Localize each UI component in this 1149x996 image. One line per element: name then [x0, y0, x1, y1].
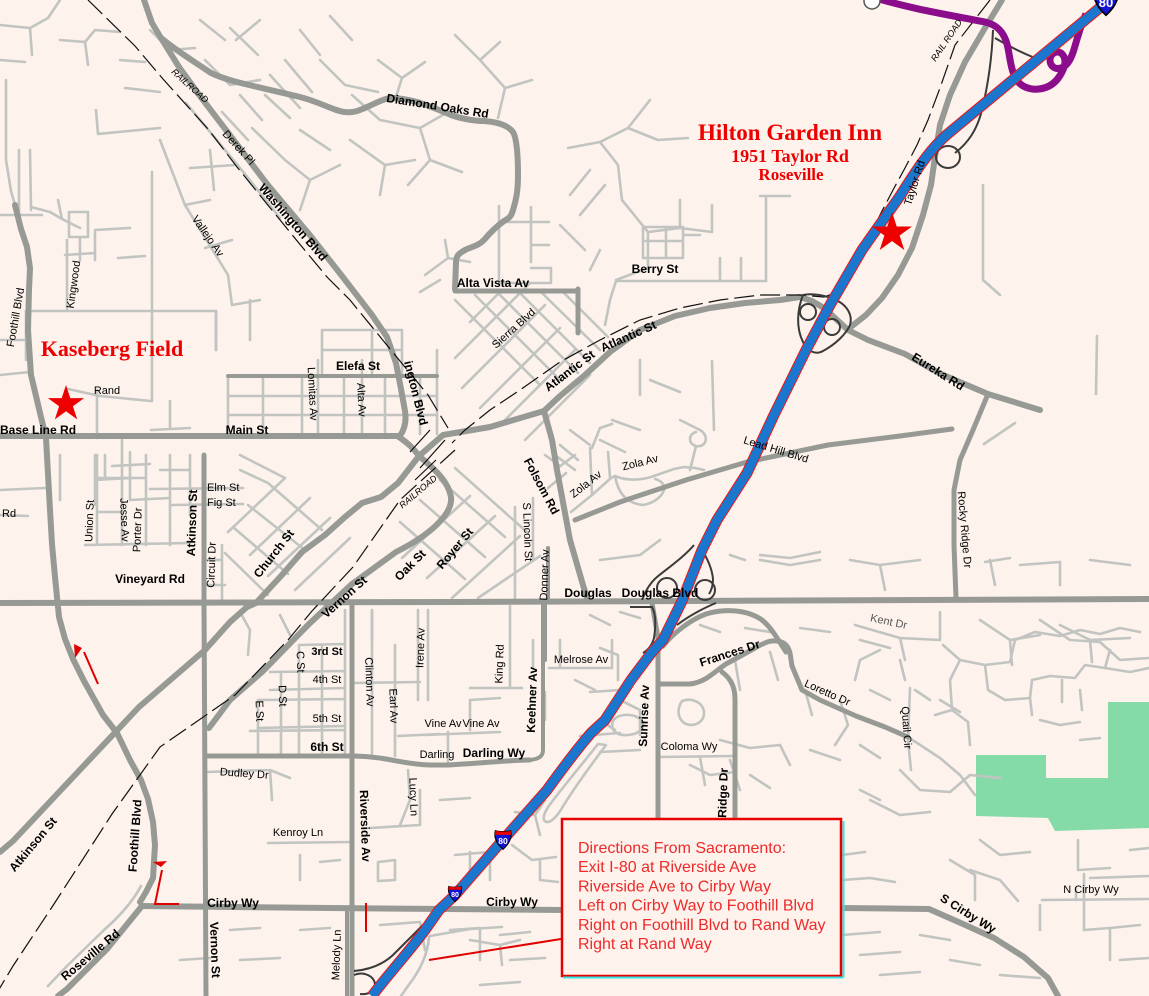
svg-text:Rd: Rd	[2, 508, 16, 520]
svg-text:Melody Ln: Melody Ln	[330, 929, 344, 980]
svg-text:Vernon St: Vernon St	[207, 922, 223, 978]
svg-text:Keehner Av: Keehner Av	[524, 666, 540, 733]
svg-text:Fig St: Fig St	[207, 497, 236, 509]
svg-text:Donner Av: Donner Av	[538, 549, 552, 601]
svg-text:80: 80	[498, 836, 508, 846]
svg-text:D St: D St	[276, 685, 289, 707]
svg-text:Union St: Union St	[83, 500, 96, 543]
svg-text:C St: C St	[294, 651, 307, 673]
svg-text:Roseville: Roseville	[758, 165, 824, 184]
svg-text:Rand: Rand	[94, 385, 120, 397]
svg-text:Kenroy Ln: Kenroy Ln	[273, 827, 323, 839]
svg-text:Darling Wy: Darling Wy	[463, 746, 526, 760]
svg-text:King Rd: King Rd	[493, 644, 506, 684]
svg-text:1951 Taylor Rd: 1951 Taylor Rd	[731, 146, 849, 166]
svg-text:3rd St: 3rd St	[311, 646, 343, 658]
svg-text:Base Line Rd: Base Line Rd	[0, 423, 76, 437]
svg-text:Right at Rand Way: Right at Rand Way	[578, 936, 712, 953]
svg-text:Hilton Garden Inn: Hilton Garden Inn	[698, 120, 882, 145]
svg-text:Clinton Av: Clinton Av	[362, 657, 376, 707]
svg-text:Douglas Blvd: Douglas Blvd	[622, 586, 699, 600]
svg-text:Left on Cirby Way to Foothill: Left on Cirby Way to Foothill Blvd	[578, 898, 814, 915]
svg-text:80: 80	[1099, 0, 1113, 10]
svg-text:Kaseberg Field: Kaseberg Field	[41, 336, 183, 361]
svg-text:Atkinson St: Atkinson St	[184, 489, 200, 556]
svg-text:4th St: 4th St	[313, 674, 342, 686]
svg-text:Riverside Ave to Cirby Way: Riverside Ave to Cirby Way	[578, 878, 771, 895]
svg-text:Alta Av: Alta Av	[354, 383, 368, 418]
svg-text:Exit I-80 at Riverside Ave: Exit I-80 at Riverside Ave	[578, 859, 757, 876]
svg-text:Melrose Av: Melrose Av	[554, 654, 609, 666]
svg-text:Berry St: Berry St	[632, 262, 679, 276]
svg-text:Coloma Wy: Coloma Wy	[661, 741, 718, 753]
svg-text:N Cirby Wy: N Cirby Wy	[1063, 884, 1119, 896]
svg-text:Cirby Wy: Cirby Wy	[207, 896, 259, 910]
svg-text:Circuit Dr: Circuit Dr	[205, 541, 219, 588]
svg-text:Vine Av: Vine Av	[463, 718, 500, 730]
svg-text:Alta Vista Av: Alta Vista Av	[457, 276, 530, 290]
svg-text:Jesse Av: Jesse Av	[117, 498, 131, 543]
svg-text:Cirby Wy: Cirby Wy	[486, 895, 538, 909]
svg-text:Douglas: Douglas	[564, 586, 612, 600]
svg-text:Main St: Main St	[226, 423, 269, 437]
svg-text:Irene Av: Irene Av	[414, 627, 427, 668]
svg-text:Lucy Ln: Lucy Ln	[406, 777, 419, 816]
svg-text:Right on Foothill Blvd to Rand: Right on Foothill Blvd to Rand Way	[578, 917, 826, 934]
svg-text:Directions From Sacramento:: Directions From Sacramento:	[578, 840, 786, 857]
svg-text:6th St: 6th St	[310, 740, 343, 754]
svg-text:5th St: 5th St	[313, 713, 342, 725]
svg-text:Ridge Dr: Ridge Dr	[715, 767, 731, 818]
svg-text:Vineyard Rd: Vineyard Rd	[115, 572, 185, 586]
svg-text:Riverside Av: Riverside Av	[357, 790, 374, 863]
svg-text:Elm St: Elm St	[207, 482, 239, 494]
svg-text:Porter Dr: Porter Dr	[131, 507, 145, 552]
svg-text:Earl Av: Earl Av	[386, 688, 399, 724]
svg-text:E St: E St	[253, 700, 266, 721]
svg-text:S Lincoln St: S Lincoln St	[520, 502, 534, 561]
svg-text:80: 80	[451, 892, 459, 899]
svg-text:Darling: Darling	[420, 749, 455, 761]
svg-text:Elefa St: Elefa St	[336, 359, 380, 373]
svg-text:Vine Av: Vine Av	[425, 718, 462, 730]
svg-text:Sunrise Av: Sunrise Av	[636, 684, 652, 747]
